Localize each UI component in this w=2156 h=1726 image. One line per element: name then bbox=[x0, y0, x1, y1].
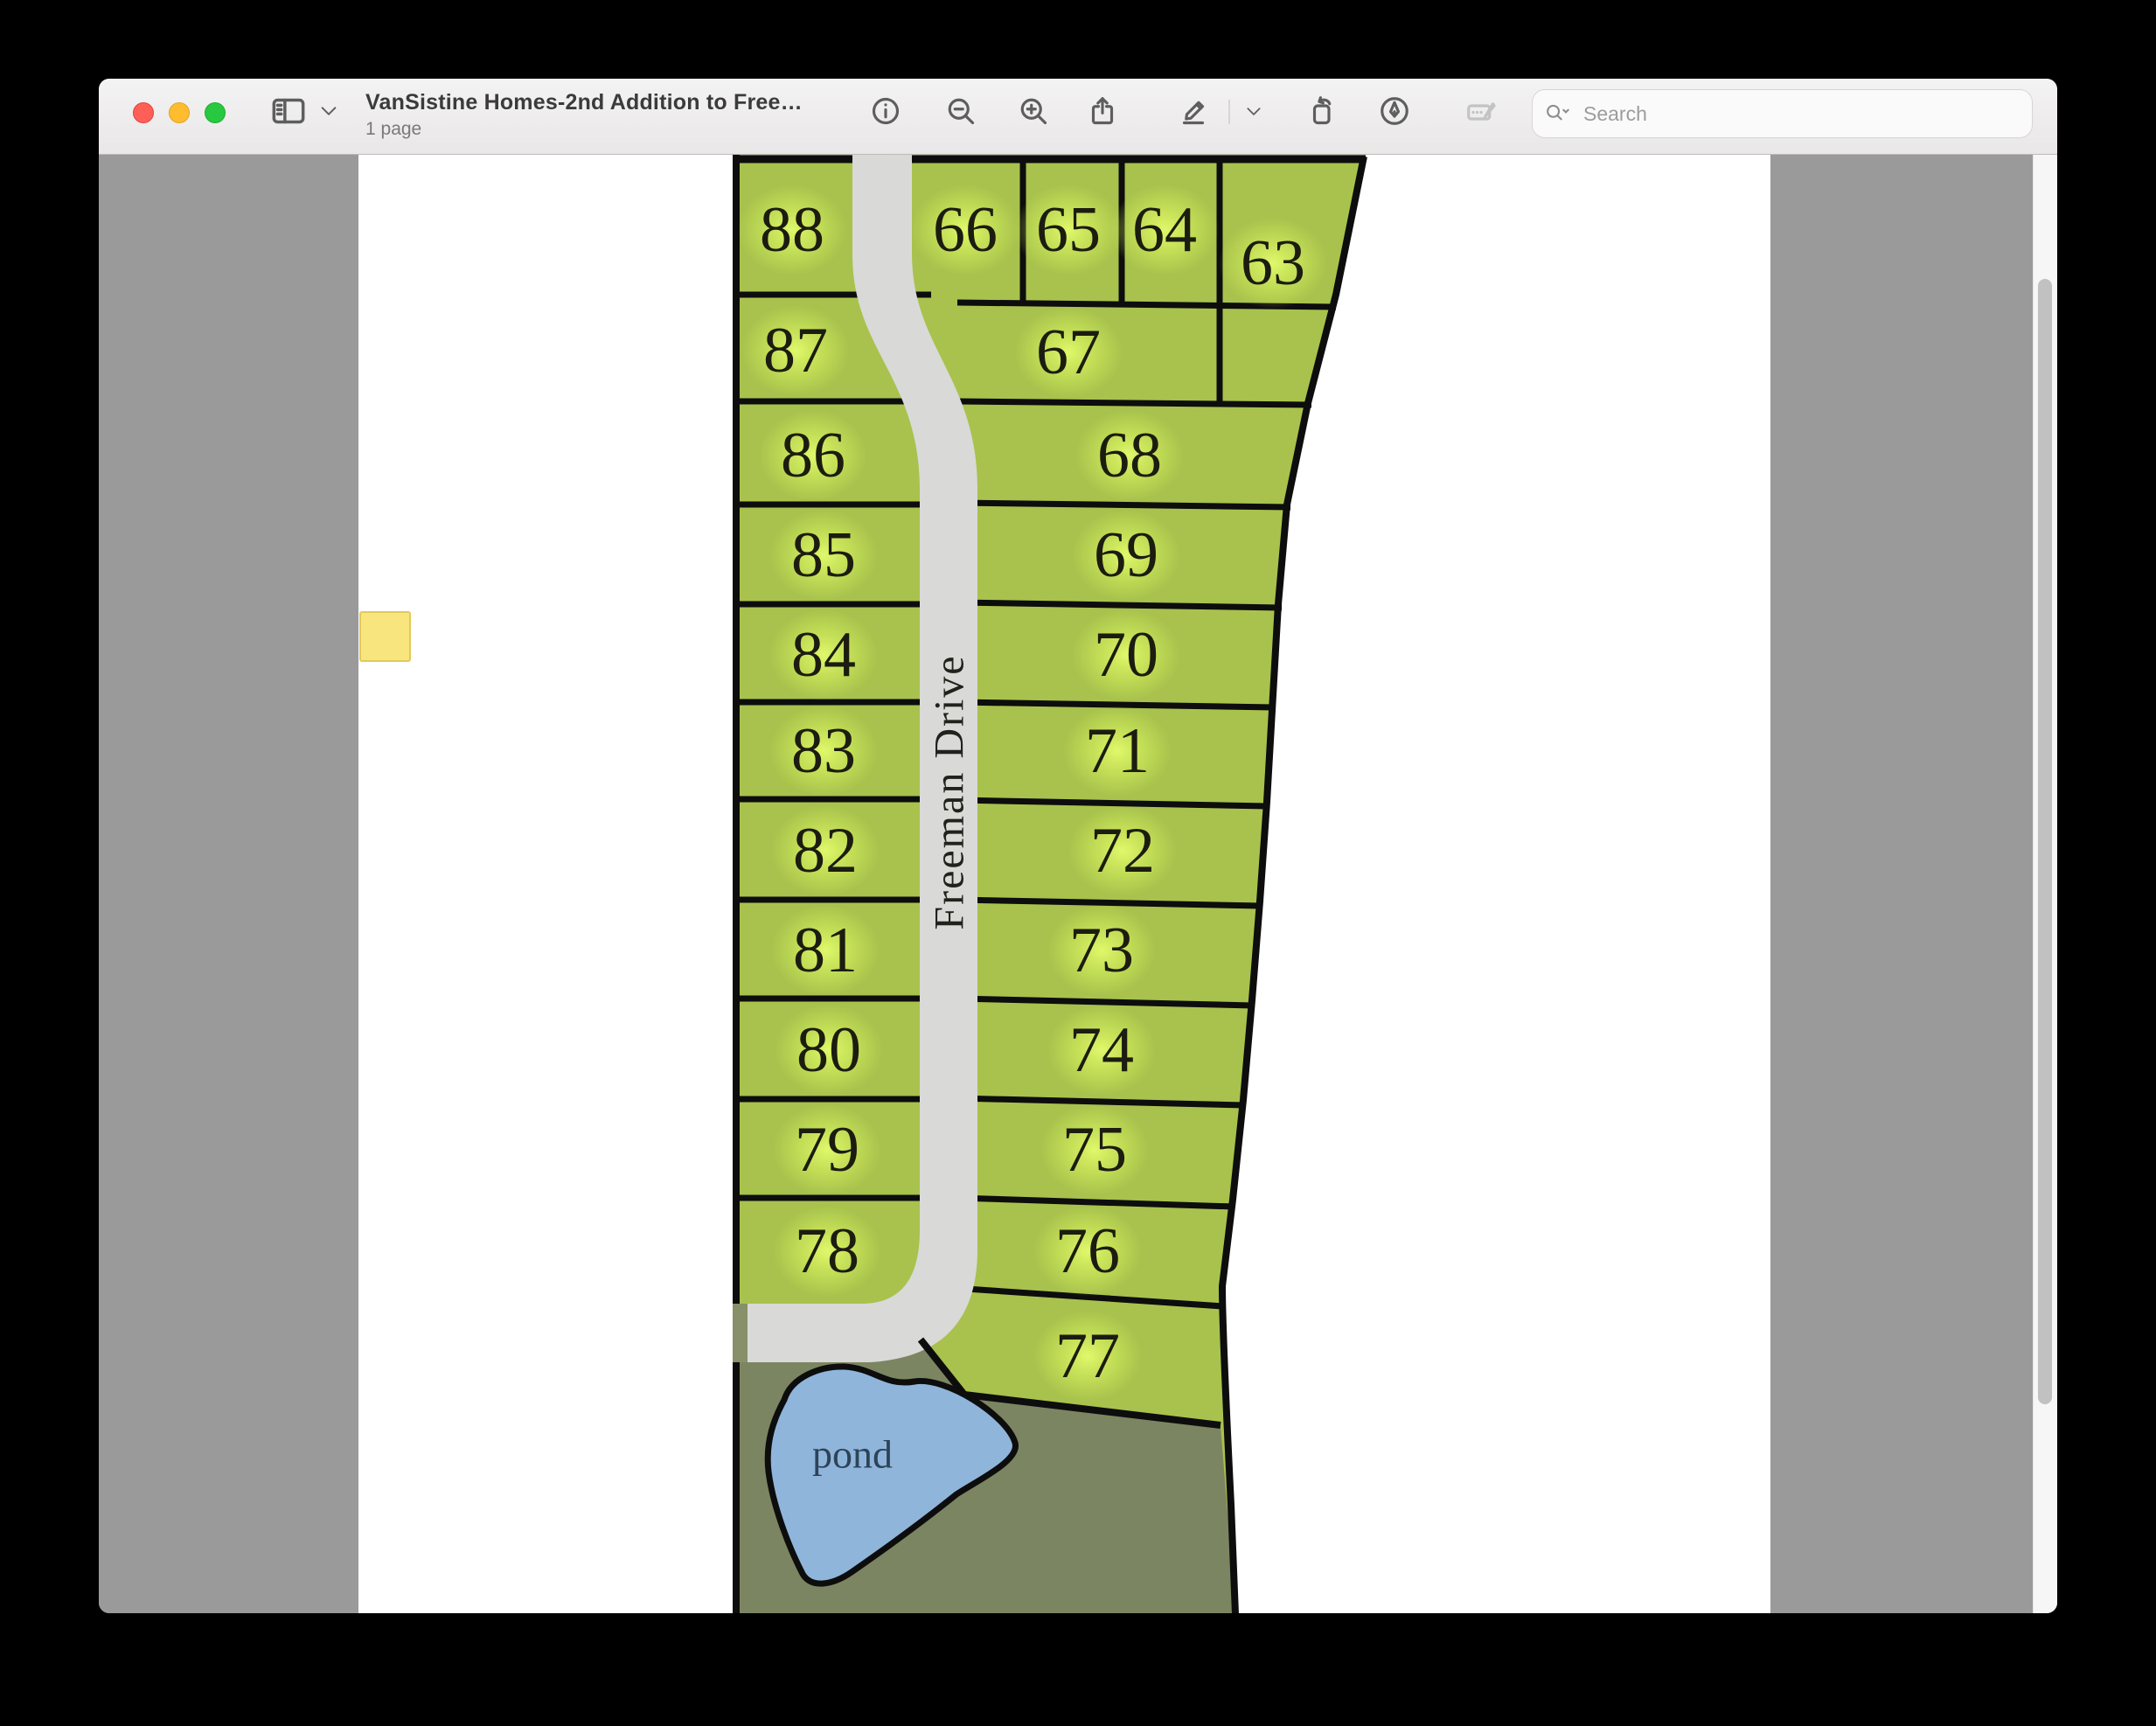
signature-button[interactable] bbox=[1462, 92, 1500, 130]
toolbar-divider bbox=[1228, 100, 1230, 124]
lot-81: 81 bbox=[771, 905, 880, 996]
lot-number: 83 bbox=[791, 715, 856, 787]
lot-number: 66 bbox=[933, 194, 998, 266]
annotation-note[interactable] bbox=[359, 611, 411, 662]
lot-number: 63 bbox=[1241, 227, 1305, 299]
share-button[interactable] bbox=[1083, 92, 1122, 130]
lot-74: 74 bbox=[1047, 1005, 1156, 1096]
lot-67: 67 bbox=[1014, 307, 1123, 398]
lot-64: 64 bbox=[1110, 184, 1219, 275]
info-icon bbox=[870, 95, 901, 127]
markup-button[interactable] bbox=[1174, 92, 1213, 130]
chevron-down-icon bbox=[1245, 106, 1262, 117]
sidebar-icon bbox=[271, 96, 306, 126]
lot-number: 76 bbox=[1055, 1215, 1120, 1287]
lot-82: 82 bbox=[771, 805, 880, 896]
lot-number: 86 bbox=[781, 420, 845, 491]
scrollbar-thumb[interactable] bbox=[2038, 279, 2052, 1404]
lot-number: 75 bbox=[1062, 1114, 1127, 1186]
lot-65: 65 bbox=[1014, 184, 1123, 275]
lot-72: 72 bbox=[1068, 805, 1177, 896]
lot-number: 79 bbox=[795, 1114, 859, 1186]
lot-83: 83 bbox=[769, 706, 878, 797]
lot-number: 88 bbox=[760, 194, 824, 266]
lot-78: 78 bbox=[773, 1206, 881, 1297]
search-field[interactable] bbox=[1532, 89, 2033, 138]
markup-pen-icon bbox=[1178, 95, 1209, 127]
lot-71: 71 bbox=[1063, 706, 1172, 797]
lot-number: 68 bbox=[1097, 420, 1162, 491]
close-button[interactable] bbox=[133, 102, 154, 123]
zoom-in-button[interactable] bbox=[1014, 92, 1053, 130]
lot-80: 80 bbox=[775, 1005, 883, 1096]
zoom-in-icon bbox=[1018, 95, 1049, 127]
sidebar-toggle-button[interactable] bbox=[269, 92, 308, 130]
lot-76: 76 bbox=[1033, 1206, 1142, 1297]
lot-number: 82 bbox=[793, 815, 858, 887]
lot-number: 74 bbox=[1069, 1014, 1134, 1086]
lot-number: 72 bbox=[1090, 815, 1155, 887]
info-button[interactable] bbox=[866, 92, 905, 130]
preview-window: VanSistine Homes-2nd Addition to Free… 1… bbox=[99, 79, 2057, 1613]
page-count: 1 page bbox=[365, 119, 803, 140]
lot-68: 68 bbox=[1075, 410, 1184, 501]
road-exit-stub bbox=[733, 1304, 748, 1362]
chevron-down-icon bbox=[319, 105, 338, 117]
lot-number: 73 bbox=[1069, 915, 1134, 986]
lot-73: 73 bbox=[1047, 905, 1156, 996]
zoom-out-icon bbox=[945, 95, 977, 127]
lot-84: 84 bbox=[769, 609, 878, 700]
search-input[interactable] bbox=[1582, 101, 1987, 127]
lot-75: 75 bbox=[1040, 1104, 1149, 1195]
document-title-block: VanSistine Homes-2nd Addition to Free… 1… bbox=[365, 90, 803, 140]
road-label: Freeman Drive bbox=[927, 654, 973, 929]
lot-79: 79 bbox=[773, 1104, 881, 1195]
rotate-left-button[interactable] bbox=[1302, 92, 1340, 130]
search-icon bbox=[1545, 102, 1573, 125]
fullscreen-button[interactable] bbox=[205, 102, 226, 123]
lot-number: 64 bbox=[1132, 194, 1197, 266]
lot-number: 78 bbox=[795, 1215, 859, 1287]
lot-70: 70 bbox=[1072, 609, 1180, 700]
lot-number: 70 bbox=[1094, 619, 1158, 691]
plat-map: Freeman Drive pond 888786858483828180797… bbox=[358, 155, 1770, 1613]
annotate-pen-icon bbox=[1379, 95, 1410, 127]
pdf-view-area: Freeman Drive pond 888786858483828180797… bbox=[99, 155, 2057, 1613]
lot-number: 69 bbox=[1094, 519, 1158, 591]
sidebar-options-button[interactable] bbox=[316, 92, 342, 130]
lot-63: 63 bbox=[1219, 218, 1327, 309]
lot-85: 85 bbox=[769, 510, 878, 601]
lot-number: 80 bbox=[796, 1014, 861, 1086]
document-title: VanSistine Homes-2nd Addition to Free… bbox=[365, 90, 803, 115]
lot-number: 65 bbox=[1036, 194, 1101, 266]
screen: { "window": { "title": "VanSistine Homes… bbox=[0, 0, 2156, 1726]
rotate-left-icon bbox=[1305, 95, 1337, 127]
lot-number: 85 bbox=[791, 519, 856, 591]
lot-number: 81 bbox=[793, 915, 858, 986]
signature-icon bbox=[1464, 95, 1498, 127]
pond-label: pond bbox=[812, 1432, 893, 1477]
titlebar: VanSistine Homes-2nd Addition to Free… 1… bbox=[99, 79, 2057, 155]
lot-88: 88 bbox=[738, 184, 846, 275]
lot-69: 69 bbox=[1072, 510, 1180, 601]
lot-number: 71 bbox=[1085, 715, 1150, 787]
annotate-button[interactable] bbox=[1375, 92, 1414, 130]
lot-number: 84 bbox=[791, 619, 856, 691]
pdf-page: Freeman Drive pond 888786858483828180797… bbox=[358, 155, 1770, 1613]
scrollbar-track[interactable] bbox=[2033, 155, 2057, 1613]
lot-number: 77 bbox=[1055, 1320, 1120, 1392]
minimize-button[interactable] bbox=[169, 102, 190, 123]
lot-66: 66 bbox=[911, 184, 1019, 275]
share-icon bbox=[1087, 95, 1118, 127]
zoom-out-button[interactable] bbox=[942, 92, 980, 130]
lot-86: 86 bbox=[759, 410, 867, 501]
lot-number: 87 bbox=[763, 315, 828, 386]
markup-options-button[interactable] bbox=[1241, 92, 1267, 130]
lot-number: 67 bbox=[1036, 317, 1101, 388]
lot-77: 77 bbox=[1033, 1311, 1142, 1402]
lot-87: 87 bbox=[741, 305, 850, 396]
